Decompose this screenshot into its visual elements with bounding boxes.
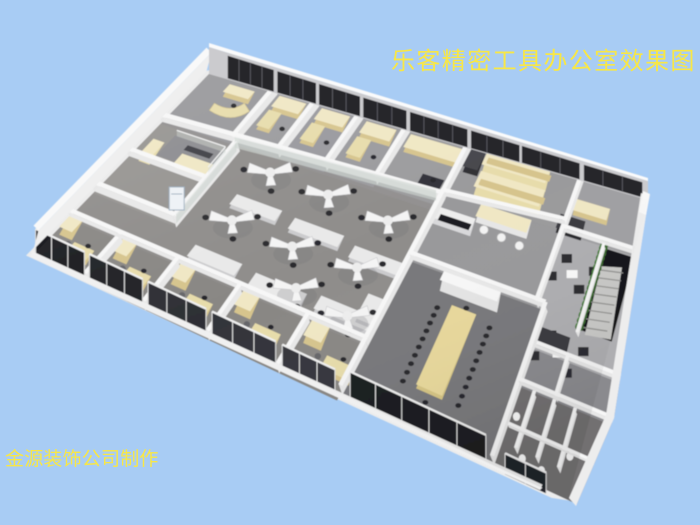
svg-text:乐客精密工具办公室效果图: 乐客精密工具办公室效果图 [391, 48, 696, 75]
svg-text:金源装饰公司制作: 金源装饰公司制作 [5, 448, 159, 470]
